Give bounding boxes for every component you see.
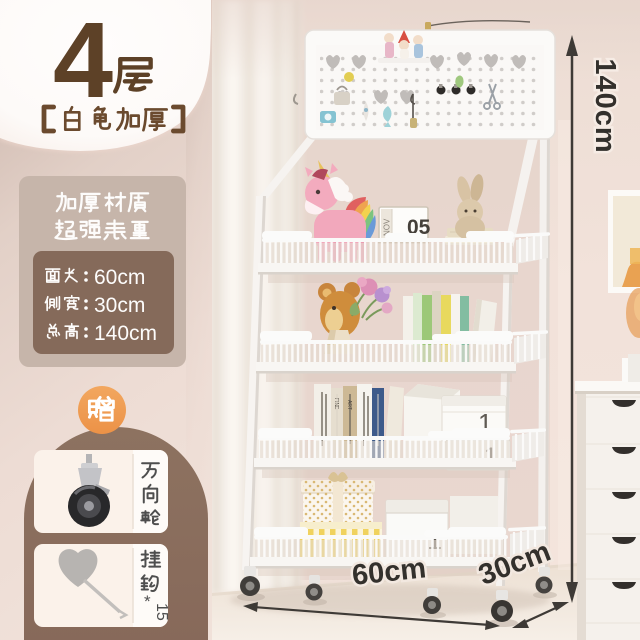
svg-text:4: 4 — [53, 0, 113, 120]
svg-text:60cm: 60cm — [94, 266, 145, 289]
svg-text:15: 15 — [153, 603, 170, 621]
svg-text:*: * — [144, 592, 151, 611]
svg-text:140cm: 140cm — [589, 58, 621, 153]
svg-text:FINE: FINE — [333, 398, 339, 410]
svg-text:ART: ART — [346, 400, 352, 410]
svg-text:30cm: 30cm — [94, 294, 145, 317]
svg-text:140cm: 140cm — [94, 322, 157, 345]
